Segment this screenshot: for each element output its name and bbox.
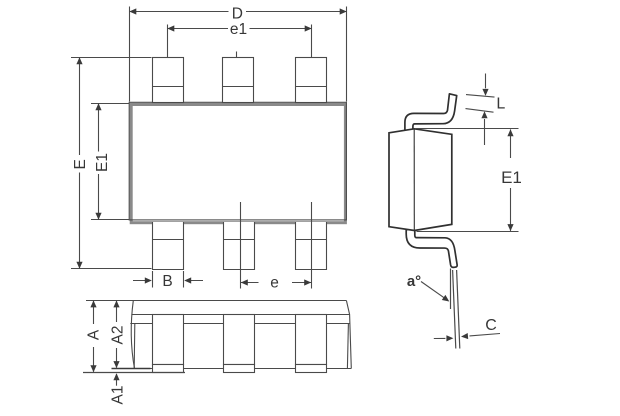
- svg-text:L: L: [496, 95, 505, 112]
- svg-text:A: A: [86, 329, 103, 340]
- svg-text:A2: A2: [110, 326, 127, 345]
- svg-text:E1: E1: [94, 153, 111, 172]
- svg-text:B: B: [162, 273, 172, 290]
- svg-text:e1: e1: [230, 21, 247, 38]
- svg-text:e: e: [270, 275, 279, 292]
- svg-text:C: C: [485, 317, 497, 334]
- svg-text:A1: A1: [110, 386, 127, 405]
- svg-text:a°: a°: [407, 273, 421, 290]
- svg-text:E1: E1: [501, 168, 522, 187]
- svg-text:D: D: [232, 5, 243, 22]
- svg-text:E: E: [72, 159, 89, 169]
